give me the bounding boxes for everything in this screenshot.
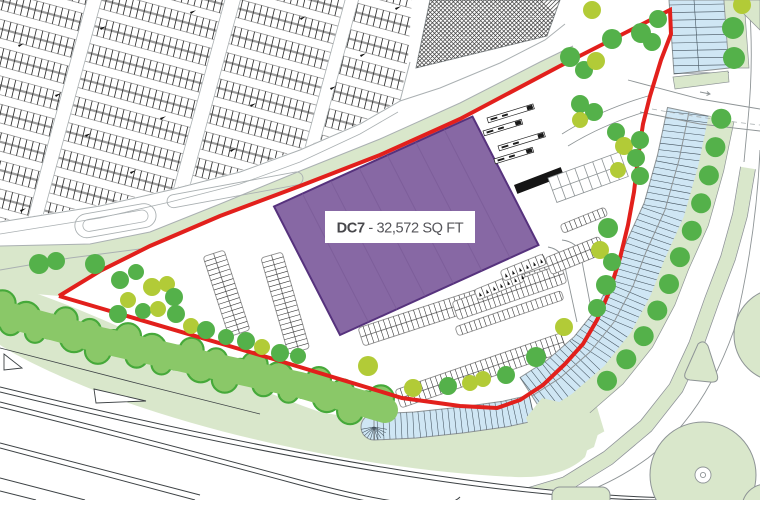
svg-text:DC7 - 32,572 SQ FT: DC7 - 32,572 SQ FT xyxy=(337,221,464,237)
